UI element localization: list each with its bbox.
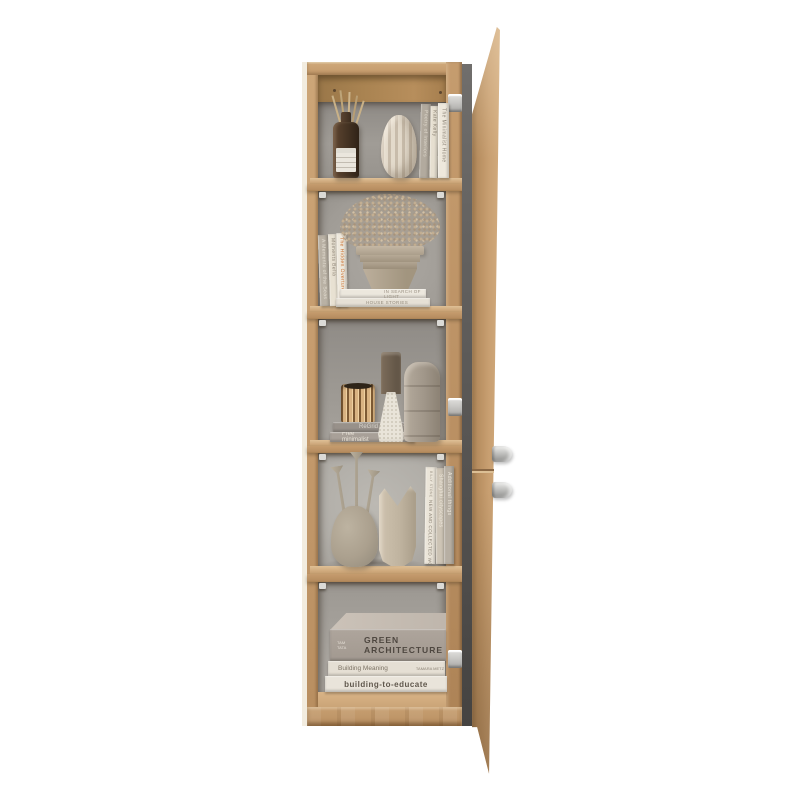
shelf3-front-edge	[307, 446, 462, 453]
book-spine-text: HOUSE STORIES	[366, 300, 408, 305]
tall-stone-vase	[404, 362, 440, 442]
diffuser-bottle-label	[336, 148, 356, 172]
book: The Minimalist Home	[438, 103, 449, 178]
cabinet-left-stile	[307, 62, 318, 726]
book-author-text: BILLY STONE	[429, 471, 433, 498]
shelf-peg	[437, 454, 444, 460]
shelf2-front-edge	[307, 312, 462, 319]
book: Additional things	[444, 466, 454, 564]
screw-dot	[439, 91, 442, 94]
shelf-peg	[437, 320, 444, 326]
shelf-peg	[319, 192, 326, 198]
shelf1-front-edge	[307, 184, 462, 191]
book: Building Meaning TAMARA METZ	[328, 661, 445, 676]
shelf-peg	[319, 320, 326, 326]
book-spine-text: The Minimalist Home	[441, 108, 447, 163]
planter-body	[363, 269, 417, 289]
book: HOUSE STORIES	[336, 298, 430, 307]
shelf4-front-edge	[307, 574, 462, 582]
product-photo-stage: Poetry of Interiors Kate Kelly The Minim…	[0, 0, 800, 800]
shelf-peg	[319, 454, 326, 460]
door-hinge-middle	[448, 398, 462, 416]
book-spine-text: GREEN ARCHITECTURE	[364, 635, 446, 655]
door-hinge-top	[448, 94, 462, 112]
book: TAM TATA GREEN ARCHITECTURE	[330, 629, 446, 661]
book: IN SEARCH OF LIGHT	[340, 289, 426, 298]
cabinet-top-rail	[307, 62, 462, 75]
shelf-peg	[319, 583, 326, 589]
book-spine-text: Poetry of Interiors	[422, 110, 429, 157]
book-spine-text: IN SEARCH OF LIGHT	[384, 289, 426, 298]
cabinet-floor	[318, 692, 446, 707]
triple-neck-vase-body	[331, 506, 378, 567]
planter-rim	[356, 246, 424, 255]
book-spine-text: ReGrid	[359, 424, 378, 430]
book-spine-text: Additional things	[446, 472, 452, 516]
book-spine-text: A Memento of the Seas	[320, 239, 328, 300]
book-author-text: TAMARA METZ	[416, 666, 444, 671]
door-knob-upper	[492, 446, 512, 462]
shelf-peg	[437, 583, 444, 589]
big-book-top-face	[330, 613, 446, 630]
door-inner-face	[462, 64, 472, 726]
book-spine-text: Shanghai cityscapes	[438, 474, 444, 527]
planter-step	[360, 255, 420, 262]
ribbed-vase	[381, 115, 417, 178]
door-panel-shading	[470, 24, 504, 776]
book-spine-text: Free minimalist	[342, 432, 378, 442]
planter-step	[363, 262, 417, 269]
door-knob-lower	[492, 482, 512, 498]
screw-dot	[333, 89, 336, 92]
shelf-peg	[437, 192, 444, 198]
book-spine-text: building-to-educate	[344, 680, 428, 689]
candle	[381, 352, 401, 394]
book-spine-text: Kate Kelly	[431, 110, 437, 137]
top-back-rail	[318, 75, 446, 102]
book: BILLY STONE NEW AND COLLECTED WORKS	[424, 467, 436, 564]
cabinet-plinth	[307, 707, 462, 726]
ribbed-gold-vase	[341, 384, 375, 423]
book-spine-text: The Hidden Overture	[338, 237, 345, 291]
book-author-text: TAM TATA	[337, 640, 350, 650]
book-spine-text: NEW AND COLLECTED WORKS	[427, 500, 433, 565]
book-spine-text: Building Meaning	[338, 665, 388, 672]
door-seam-highlight	[472, 471, 494, 473]
gold-vase-opening	[344, 383, 372, 389]
door-hinge-bottom	[448, 650, 462, 668]
book: building-to-educate	[325, 676, 447, 692]
